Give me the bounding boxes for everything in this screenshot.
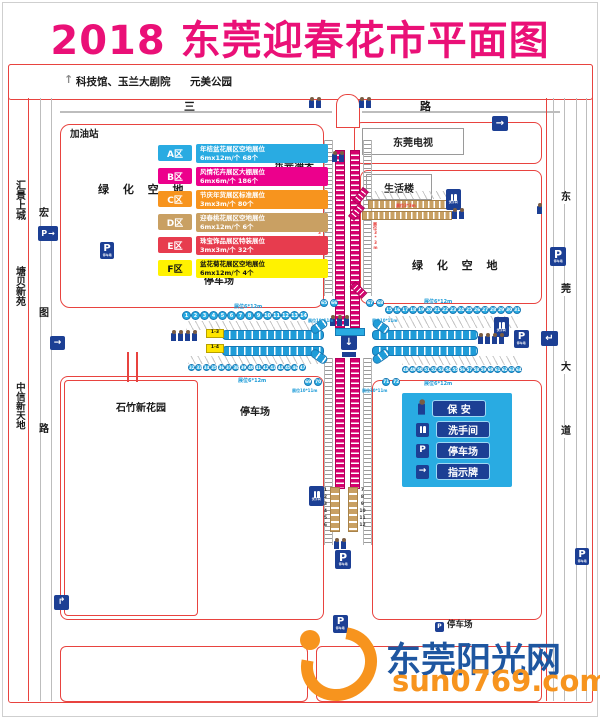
direction-sign-northeast: → (492, 116, 508, 131)
zone-row-d: D区 迎春桃花展区空地展位6mx12m/个 6个 (158, 213, 328, 232)
stall-number-chip: 12 (359, 524, 366, 529)
shizhu-estate-block (64, 380, 198, 616)
bottom-left-block (60, 646, 308, 702)
junction-sign-footer (342, 352, 356, 357)
legend-guard-label: 保 安 (432, 400, 486, 417)
stall-number-chip: 21 (433, 306, 441, 314)
stall-number-chip: 55 (451, 366, 458, 373)
stall-number-chip: 25 (465, 306, 473, 314)
watermark-site-url: sun0769.com (392, 664, 600, 698)
avenue-char-4: 道 (561, 426, 571, 438)
stall-number-row-east-bottom: 4849505152535455565758596061626364 (402, 366, 522, 373)
stall-number-chip: 10 (359, 510, 366, 515)
stall-number-chip: 27 (481, 306, 489, 314)
junction-down-sign: ↓ (341, 335, 357, 350)
stall-number-chip: 39 (240, 364, 247, 371)
stall-number-row-east-top: 1516171819202122232425262728293031 (385, 306, 519, 314)
stall-number-chip: 36 (218, 364, 225, 371)
hongtu-road-char-2: 图 (39, 308, 49, 320)
parking-sign-avenue-south: P停车场 (575, 548, 589, 565)
stall-pair-northwest: 6566 (320, 299, 338, 307)
yuanmei-park-label: 元美公园 (190, 76, 232, 88)
stall-number-chip: 12 (281, 311, 290, 320)
stall-number-chip: 26 (473, 306, 481, 314)
stall-size-label-north-right: 展位3*3m (372, 222, 378, 250)
sanyuan-road-char-3: 路 (420, 101, 431, 114)
zone-row-f: F区 盆花菊花展区空地展位6mx12m/个 4个 (158, 259, 328, 278)
zone-row-c: C区 节庆年货展区标准展位3mx3m/个 80个 (158, 190, 328, 209)
stall-number-chip: 58 (473, 366, 480, 373)
stall-size-pair-ne: 展位10*11m (372, 318, 397, 324)
stall-leader-lines-east-bottom (402, 356, 518, 365)
stall-pair-southeast: 7172 (382, 378, 400, 386)
stall-number-chip: 51 (423, 366, 430, 373)
tan-stall-strip-ne-2 (362, 211, 452, 220)
zone-row-a: A区 年桔盆花展区空地展位6mx12m/个 68个 (158, 144, 328, 163)
stall-pair-southwest: 6970 (304, 378, 322, 386)
magenta-stall-column-north-2 (350, 150, 360, 328)
avenue-lane-2 (564, 98, 565, 701)
sanyuan-road-char-1: 三 (184, 101, 195, 114)
stall-number-chip: 10 (263, 311, 272, 320)
magenta-stall-column-south-2 (350, 358, 360, 489)
legend-sign-label: 指示牌 (436, 463, 490, 480)
stall-size-east-top: 展位6*12m (424, 298, 452, 305)
zone-a-desc: 年桔盆花展区空地展位6mx12m/个 68个 (196, 144, 328, 163)
stall-number-chip: 11 (359, 517, 366, 522)
zone-d-label: D区 (158, 214, 192, 230)
stall-leader-lines-ne (372, 191, 448, 199)
stall-number-chip: 7 (359, 489, 366, 494)
zone-e-desc: 珠宝饰品展区特装展位3mx3m/个 32个 (196, 236, 328, 255)
zone-legend: A区 年桔盆花展区空地展位6mx12m/个 68个 B区 风情花卉展区大棚展位6… (158, 144, 328, 282)
tangbei-label: 塘贝新苑 (13, 266, 25, 306)
stall-number-chip: 37 (225, 364, 232, 371)
stall-number-chip: 24 (457, 306, 465, 314)
guard-icon (418, 403, 425, 414)
stall-number-chip: 33 (195, 364, 202, 371)
stall-number-chip: 65 (320, 299, 328, 307)
parking-sign-east-arm: P停车场 (514, 330, 529, 348)
stall-number-chip: 4 (322, 510, 329, 515)
hongtu-road-char-3: 路 (39, 424, 49, 436)
junction-sign-header (335, 328, 365, 336)
parking-sign-south-arm: P停车场 (335, 550, 351, 569)
stall-number-chip: 30 (505, 306, 513, 314)
up-arrow-icon: ↑ (64, 74, 73, 87)
zone-row-e: E区 珠宝饰品展区特装展位3mx3m/个 32个 (158, 236, 328, 255)
stall-number-chip: 62 (501, 366, 508, 373)
stall-size-west-top: 展位6*12m (234, 303, 262, 310)
sanyuan-road-line-west (60, 111, 332, 113)
stall-number-chip: 14 (299, 311, 308, 320)
security-guards-south-arm (333, 541, 347, 549)
stall-number-chip: 44 (277, 364, 284, 371)
stall-number-chip: 2 (191, 311, 200, 320)
toilet-sign-northeast: 洗手间 (446, 189, 461, 210)
tan-stall-column-south-right (348, 487, 358, 532)
zone-b-label: B区 (158, 168, 192, 184)
stall-number-col-south-left: 123456 (322, 489, 329, 529)
stall-number-chip: 71 (382, 378, 390, 386)
zone-d-desc: 迎春桃花展区空地展位6mx12m/个 6个 (196, 213, 328, 232)
stall-number-chip: 50 (416, 366, 423, 373)
stall-number-chip: 59 (480, 366, 487, 373)
avenue-lane-3 (576, 98, 577, 701)
parking-lot-bottom-label: 停车场 (447, 621, 473, 631)
security-guards-sanyuan-west (308, 100, 322, 108)
stall-number-chip: 60 (487, 366, 494, 373)
sanyuan-road-line-east (362, 111, 560, 113)
stall-number-chip: 29 (497, 306, 505, 314)
stall-number-chip: 18 (409, 306, 417, 314)
stall-number-row-west-bottom: 32333435363738394041424344454647 (188, 364, 306, 371)
zone-b-desc: 风情花卉展区大棚展位6mx6m/个 186个 (196, 167, 328, 186)
shizhu-label: 石竹新花园 (116, 403, 166, 415)
legend-row-guard: 保 安 (416, 400, 512, 417)
avenue-char-1: 东 (561, 192, 571, 204)
stall-number-chip: 11 (272, 311, 281, 320)
stall-leader-lines-west-bottom (188, 356, 320, 364)
stall-number-chip: 49 (409, 366, 416, 373)
left-strip-line (28, 98, 29, 701)
stall-number-chip: 42 (262, 364, 269, 371)
gas-station-label: 加油站 (70, 130, 99, 141)
stall-number-chip: 63 (508, 366, 515, 373)
legend-parking-label: 停车场 (436, 442, 490, 459)
stall-number-chip: 69 (304, 378, 312, 386)
stall-number-col-south-right: 789101112 (359, 489, 366, 529)
stall-number-chip: 35 (210, 364, 217, 371)
hongtu-road-char-1: 宏 (39, 208, 49, 220)
toilet-icon (416, 423, 429, 437)
stall-number-chip: 56 (459, 366, 466, 373)
parking-lot-southwest-label: 停车场 (240, 407, 270, 419)
stall-number-chip: 45 (284, 364, 291, 371)
stall-number-chip: 15 (385, 306, 393, 314)
security-guards-northeast (451, 211, 465, 219)
stall-number-chip: 31 (513, 306, 521, 314)
parking-sign-northwest: P停车场 (100, 242, 114, 259)
zone-row-b: B区 风情花卉展区大棚展位6mx6m/个 186个 (158, 167, 328, 186)
sun0769-logo-icon (296, 624, 382, 704)
security-guards-north-arm (331, 154, 345, 162)
stall-number-chip: 72 (392, 378, 400, 386)
parking-mini-sign-bottom: P (435, 622, 444, 632)
stall-number-chip: 41 (255, 364, 262, 371)
zone-a-label: A区 (158, 145, 192, 161)
stall-size-pair-nw: 展位10*11m (308, 318, 333, 324)
stall-number-chip: 66 (330, 299, 338, 307)
stall-size-east-bottom: 展位6*12m (424, 380, 452, 387)
stall-number-row-west-top: 1234567891011121314 (182, 311, 308, 320)
legend-toilet-label: 洗手间 (436, 421, 490, 438)
stall-number-chip: 68 (376, 299, 384, 307)
security-guards-sanyuan-east (358, 100, 372, 108)
stall-number-chip: 16 (393, 306, 401, 314)
stall-number-chip: 47 (299, 364, 306, 371)
stall-size-pair-sw: 展位10*11m (292, 388, 317, 394)
stall-number-chip: 52 (430, 366, 437, 373)
stall-size-west-bottom: 展位6*12m (238, 377, 266, 384)
stall-number-chip: 46 (291, 364, 298, 371)
stall-number-chip: 2 (322, 496, 329, 501)
map-legend: 保 安 洗手间 P 停车场 → 指示牌 (402, 393, 512, 487)
estate-gate-line-2 (136, 352, 138, 382)
parking-direction-sign-west: P→ (38, 226, 58, 241)
magenta-stall-column-south-1 (335, 358, 345, 489)
legend-row-toilet: 洗手间 (416, 421, 512, 438)
stall-number-chip: 17 (401, 306, 409, 314)
market-entrance-gate (336, 94, 360, 128)
flower-market-map-poster: { "page": { "title": "2018 东莞迎春花市平面图" },… (0, 0, 600, 719)
legend-row-sign: → 指示牌 (416, 463, 512, 480)
stall-number-chip: 5 (322, 517, 329, 522)
stall-number-chip: 9 (254, 311, 263, 320)
stall-number-chip: 32 (188, 364, 195, 371)
legend-row-parking: P 停车场 (416, 442, 512, 459)
stall-number-chip: 9 (359, 503, 366, 508)
tan-stall-column-south-left (330, 487, 340, 532)
landmark-label: 科技馆、玉兰大剧院 (76, 76, 171, 88)
parking-sign-avenue: P停车场 (550, 247, 566, 266)
avenue-edge-line (546, 98, 547, 701)
stall-number-chip: 23 (449, 306, 457, 314)
stall-number-chip: 13 (290, 311, 299, 320)
page-title: 2018 东莞迎春花市平面图 (0, 8, 600, 66)
stall-number-chip: 1 (182, 311, 191, 320)
stall-number-chip: 8 (359, 496, 366, 501)
stall-number-chip: 1 (322, 489, 329, 494)
zone-c-label: C区 (158, 191, 192, 207)
zone-c-desc: 节庆年货展区标准展位3mx3m/个 80个 (196, 190, 328, 209)
stall-number-chip: 3 (200, 311, 209, 320)
stall-number-chip: 20 (425, 306, 433, 314)
stall-number-chip: 61 (494, 366, 501, 373)
stall-number-chip: 67 (366, 299, 374, 307)
stall-number-chip: 28 (489, 306, 497, 314)
stall-number-chip: 34 (203, 364, 210, 371)
stall-number-chip: 4 (209, 311, 218, 320)
zhongxin-label: 中信新天地 (13, 382, 24, 430)
stall-pair-northeast: 6768 (366, 299, 384, 307)
stall-number-chip: 3 (322, 503, 329, 508)
stall-number-chip: 8 (245, 311, 254, 320)
yellow-stall-1-4: 1-4 (206, 344, 224, 353)
stall-number-chip: 40 (247, 364, 254, 371)
avenue-lane-1 (553, 98, 554, 701)
stall-number-chip: 48 (402, 366, 409, 373)
avenue-lane-4 (586, 98, 587, 701)
stall-number-chip: 6 (322, 524, 329, 529)
avenue-char-3: 大 (561, 362, 571, 374)
blue-stall-strip-west-top (222, 330, 324, 340)
avenue-char-2: 莞 (561, 284, 571, 296)
parking-icon: P (416, 444, 429, 458)
stall-number-chip: 19 (417, 306, 425, 314)
stall-number-chip: 5 (218, 311, 227, 320)
hongtu-lane-1 (40, 98, 41, 701)
stall-number-chip: 54 (444, 366, 451, 373)
zone-f-desc: 盆花菊花展区空地展位6mx12m/个 4个 (196, 259, 328, 278)
turn-sign-avenue: ↵ (541, 331, 558, 346)
security-guards-east-arm (477, 336, 505, 344)
stall-number-chip: 70 (314, 378, 322, 386)
stall-number-chip: 64 (515, 366, 522, 373)
direction-sign-west: → (50, 336, 65, 350)
stall-size-pair-se: 展位10*11m (362, 388, 387, 394)
stall-number-chip: 22 (441, 306, 449, 314)
stall-number-chip: 7 (236, 311, 245, 320)
hongtu-lane-2 (51, 98, 52, 701)
zone-f-label: F区 (158, 260, 192, 276)
zone-e-label: E区 (158, 237, 192, 253)
stall-size-label-3x3: 展位3*3m (396, 203, 416, 209)
direction-sign-southwest: ↱ (54, 595, 69, 610)
stall-number-chip: 53 (437, 366, 444, 373)
huijing-label: 汇景上城 (13, 180, 25, 220)
estate-gate-line-1 (127, 352, 129, 382)
yellow-stall-1-3: 1-3 (206, 329, 224, 338)
stall-number-chip: 38 (232, 364, 239, 371)
stall-number-chip: 57 (466, 366, 473, 373)
security-guard-avenue (536, 206, 543, 214)
security-guards-west-arm (170, 333, 198, 341)
green-space-east-label: 绿 化 空 地 (412, 260, 503, 273)
direction-sign-icon: → (416, 465, 429, 479)
stall-number-chip: 6 (227, 311, 236, 320)
stall-number-chip: 43 (269, 364, 276, 371)
blue-stall-strip-west-bottom (222, 346, 324, 356)
tv-station-label: 东莞电视 (362, 128, 464, 155)
